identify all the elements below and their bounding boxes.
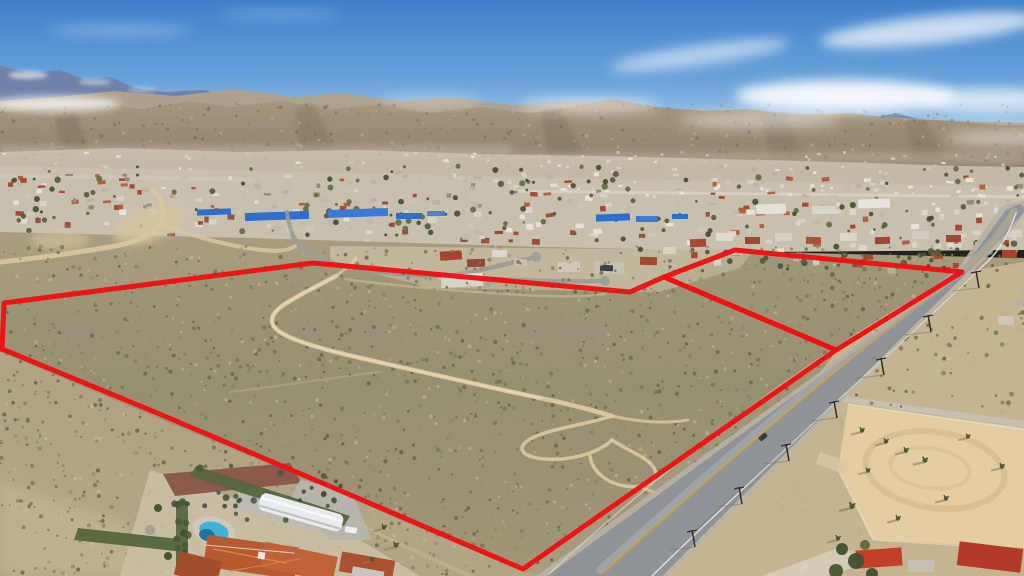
- scatter-dot: [462, 516, 465, 519]
- scatter-dot: [454, 211, 460, 217]
- scatter-dot: [106, 407, 109, 410]
- scatter-dot: [805, 247, 808, 250]
- scatter-dot: [233, 494, 238, 499]
- scatter-dot: [688, 279, 690, 281]
- scatter-dot: [195, 128, 198, 131]
- scatter-building: [468, 224, 473, 230]
- scatter-building: [760, 187, 764, 190]
- scatter-dot: [951, 395, 953, 397]
- scatter-dot: [336, 144, 338, 146]
- valley-haze: [0, 146, 512, 158]
- scatter-dot: [502, 348, 504, 350]
- scatter-building: [462, 234, 469, 240]
- scatter-dot: [728, 321, 732, 325]
- scatter-dot: [934, 353, 938, 357]
- scatter-dot: [483, 273, 485, 275]
- scatter-dot: [345, 331, 349, 335]
- scatter-dot: [888, 386, 892, 390]
- scatter-dot: [283, 274, 286, 277]
- scatter-dot: [312, 465, 314, 467]
- scatter-dot: [595, 406, 598, 409]
- scatter-dot: [783, 146, 786, 149]
- scatter-dot: [556, 452, 560, 456]
- scatter-dot: [94, 358, 96, 360]
- scatter-dot: [44, 131, 46, 133]
- scatter-dot: [711, 215, 716, 220]
- scatter-dot: [368, 300, 369, 301]
- scatter-dot: [605, 394, 607, 396]
- scatter-dot: [534, 330, 536, 332]
- joshua-tree-icon: [904, 448, 908, 452]
- scatter-dot: [487, 431, 491, 435]
- scatter-dot: [552, 394, 555, 397]
- scatter-dot: [32, 486, 34, 488]
- scatter-dot: [228, 361, 231, 364]
- scatter-dot: [24, 436, 28, 440]
- scatter-building: [409, 200, 415, 204]
- scatter-dot: [667, 342, 669, 344]
- scatter-building: [103, 200, 111, 203]
- scatter-dot: [706, 376, 709, 379]
- scatter-dot: [493, 421, 497, 425]
- scatter-dot: [266, 342, 269, 345]
- scatter-building: [104, 166, 108, 169]
- scatter-dot: [73, 572, 76, 575]
- scatter-dot: [737, 184, 741, 188]
- scatter-dot: [918, 143, 921, 146]
- scatter-dot: [699, 346, 701, 348]
- scatter-dot: [61, 571, 65, 575]
- scatter-building: [1007, 186, 1014, 191]
- scatter-dot: [457, 400, 460, 403]
- scatter-dot: [247, 370, 250, 373]
- scatter-dot: [922, 271, 924, 273]
- scatter-dot: [26, 443, 29, 446]
- scatter-dot: [547, 382, 549, 384]
- scatter-dot: [383, 341, 385, 343]
- scatter-dot: [662, 388, 664, 390]
- scatter-dot: [875, 278, 877, 280]
- cloud: [380, 94, 480, 106]
- scatter-dot: [663, 260, 665, 262]
- scatter-dot: [391, 141, 394, 144]
- scatter-dot: [395, 326, 397, 328]
- scatter-dot: [587, 298, 590, 301]
- scatter-dot: [94, 117, 97, 120]
- scatter-dot: [450, 296, 454, 300]
- scatter-dot: [410, 512, 413, 515]
- scatter-dot: [772, 139, 775, 142]
- scatter-dot: [228, 393, 231, 396]
- scatter-dot: [378, 103, 381, 106]
- scatter-dot: [730, 106, 732, 108]
- scatter-dot: [148, 246, 151, 249]
- scatter-dot: [373, 517, 375, 519]
- scatter-dot: [71, 475, 73, 477]
- joshua-tree-icon: [884, 439, 888, 443]
- scatter-dot: [434, 447, 436, 449]
- scatter-dot: [1, 110, 4, 113]
- scatter-dot: [406, 276, 409, 279]
- scatter-dot: [874, 288, 877, 291]
- scatter-dot: [477, 359, 481, 363]
- scatter-dot: [823, 128, 826, 131]
- scatter-dot: [495, 110, 497, 112]
- scatter-dot: [0, 441, 2, 443]
- scatter-dot: [78, 267, 82, 271]
- scatter-dot: [844, 143, 847, 146]
- scatter-dot: [572, 477, 576, 481]
- scatter-dot: [295, 308, 297, 310]
- scatter-dot: [109, 509, 111, 511]
- scatter-dot: [295, 131, 298, 134]
- scatter-dot: [845, 146, 847, 148]
- scatter-dot: [372, 325, 376, 329]
- scatter-dot: [240, 375, 242, 377]
- scatter-dot: [526, 189, 529, 192]
- scatter-dot: [102, 524, 106, 528]
- scatter-dot: [19, 360, 22, 363]
- scatter-dot: [355, 437, 357, 439]
- scatter-dot: [306, 109, 308, 111]
- scatter-dot: [656, 292, 658, 294]
- scatter-building: [916, 195, 920, 197]
- scatter-dot: [384, 253, 387, 256]
- scatter-dot: [551, 112, 553, 114]
- scatter-dot: [298, 498, 302, 502]
- scatter-dot: [57, 251, 60, 254]
- scatter-dot: [301, 315, 303, 317]
- scatter-dot: [733, 369, 736, 372]
- scatter-dot: [202, 113, 205, 116]
- scatter-dot: [77, 310, 80, 313]
- scatter-dot: [33, 206, 39, 212]
- scatter-dot: [470, 413, 472, 415]
- scatter-dot: [505, 370, 507, 372]
- scatter-dot: [577, 268, 579, 270]
- scatter-dot: [690, 385, 692, 387]
- scatter-dot: [212, 445, 216, 449]
- scatter-dot: [359, 479, 362, 482]
- scatter-dot: [493, 311, 497, 315]
- scatter-dot: [437, 302, 441, 306]
- scatter-building: [944, 167, 947, 170]
- scatter-dot: [559, 267, 562, 270]
- scatter-dot: [360, 312, 363, 315]
- scatter-dot: [922, 128, 924, 130]
- scatter-dot: [612, 445, 615, 448]
- scatter-dot: [134, 265, 138, 269]
- scatter-dot: [1013, 147, 1016, 150]
- scatter-dot: [280, 370, 282, 372]
- scatter-dot: [69, 507, 71, 509]
- scatter-dot: [379, 406, 381, 408]
- scatter-dot: [41, 421, 44, 424]
- scatter-building: [594, 172, 599, 176]
- scatter-dot: [549, 371, 553, 375]
- scatter-dot: [994, 331, 999, 336]
- scatter-dot: [323, 143, 325, 145]
- scatter-dot: [778, 340, 782, 344]
- scatter-dot: [495, 380, 499, 384]
- scatter-dot: [849, 332, 853, 336]
- scatter-dot: [123, 317, 127, 321]
- scatter-dot: [76, 568, 80, 572]
- scatter-dot: [88, 250, 90, 252]
- scatter-dot: [799, 251, 802, 254]
- scatter-dot: [274, 335, 278, 339]
- blue-roof-building: [672, 214, 688, 219]
- scatter-dot: [154, 458, 156, 460]
- scatter-dot: [834, 277, 837, 280]
- scatter-dot: [821, 248, 825, 252]
- scatter-dot: [477, 349, 480, 352]
- scatter-dot: [550, 367, 553, 370]
- scatter-dot: [194, 363, 198, 367]
- scatter-dot: [525, 179, 528, 182]
- scatter-dot: [667, 448, 669, 450]
- scatter-dot: [802, 315, 806, 319]
- scatter-dot: [590, 337, 593, 340]
- scatter-dot: [106, 556, 109, 559]
- scatter-dot: [281, 375, 284, 378]
- scatter-dot: [434, 250, 436, 252]
- scatter-dot: [588, 392, 592, 396]
- scatter-dot: [607, 333, 610, 336]
- scatter-building: [116, 155, 121, 158]
- scatter-building: [474, 230, 483, 235]
- scatter-dot: [491, 517, 492, 518]
- scatter-dot: [326, 468, 330, 472]
- scatter-dot: [304, 138, 306, 140]
- scatter-building: [661, 153, 664, 155]
- scatter-dot: [332, 456, 336, 460]
- scatter-building: [628, 157, 633, 159]
- scatter-dot: [513, 547, 516, 550]
- scatter-dot: [519, 485, 522, 488]
- scatter-dot: [582, 357, 584, 359]
- scatter-dot: [711, 419, 713, 421]
- scatter-dot: [515, 289, 519, 293]
- scatter-dot: [797, 298, 798, 299]
- scatter-dot: [467, 431, 469, 433]
- scatter-dot: [640, 113, 642, 115]
- scatter-dot: [501, 498, 503, 500]
- scatter-dot: [103, 565, 106, 568]
- scatter-dot: [67, 512, 69, 514]
- scatter-building: [935, 207, 940, 212]
- scatter-dot: [127, 522, 130, 525]
- scatter-dot: [511, 110, 514, 113]
- scatter-dot: [478, 286, 481, 289]
- scatter-dot: [544, 306, 548, 310]
- scatter-dot: [65, 537, 67, 539]
- scatter-dot: [34, 141, 36, 143]
- scatter-building: [830, 187, 833, 190]
- scatter-dot: [64, 289, 66, 291]
- scatter-dot: [15, 292, 17, 294]
- scatter-dot: [368, 290, 371, 293]
- scatter-building: [994, 156, 996, 158]
- scatter-dot: [898, 123, 900, 125]
- scatter-dot: [600, 116, 603, 119]
- scatter-dot: [461, 339, 465, 343]
- scatter-dot: [39, 381, 41, 383]
- scatter-dot: [548, 280, 550, 282]
- scatter-dot: [747, 131, 750, 134]
- scatter-dot: [28, 420, 30, 422]
- scatter-dot: [363, 460, 366, 463]
- scatter-building: [879, 170, 882, 173]
- scatter-dot: [648, 110, 650, 112]
- scatter-dot: [168, 142, 171, 145]
- scatter-building: [582, 155, 584, 157]
- scatter-dot: [87, 270, 89, 272]
- scatter-dot: [228, 307, 231, 310]
- scatter-dot: [759, 348, 762, 351]
- scatter-dot: [68, 414, 72, 418]
- scatter-dot: [520, 529, 524, 533]
- scatter-dot: [896, 289, 898, 291]
- scatter-dot: [249, 134, 252, 137]
- scatter-dot: [577, 312, 581, 316]
- scatter-dot: [944, 254, 946, 256]
- scatter-dot: [870, 134, 873, 137]
- scatter-dot: [465, 565, 468, 568]
- scatter-dot: [561, 434, 563, 436]
- scatter-dot: [139, 315, 143, 319]
- scatter-dot: [464, 532, 467, 535]
- scatter-dot: [475, 314, 478, 317]
- scatter-dot: [472, 118, 475, 121]
- scatter-dot: [91, 542, 94, 545]
- scatter-dot: [452, 115, 456, 119]
- scatter-dot: [14, 380, 16, 382]
- scatter-building: [333, 161, 335, 163]
- scatter-dot: [37, 435, 40, 438]
- scatter-building: [781, 192, 785, 195]
- scatter-dot: [99, 134, 101, 136]
- scatter-dot: [640, 410, 644, 414]
- scatter-dot: [339, 442, 341, 444]
- scatter-building: [61, 153, 65, 156]
- scatter-dot: [424, 250, 428, 254]
- scatter-dot: [789, 357, 791, 359]
- scatter-dot: [329, 132, 333, 136]
- scatter-building: [634, 155, 637, 158]
- scatter-dot: [402, 523, 405, 526]
- scatter-dot: [655, 261, 657, 263]
- scatter-dot: [516, 480, 519, 483]
- house-roof: [775, 233, 792, 242]
- scatter-dot: [329, 359, 332, 362]
- scatter-dot: [553, 212, 557, 216]
- scatter-building: [344, 154, 349, 157]
- scatter-dot: [22, 498, 24, 500]
- scatter-dot: [403, 165, 406, 168]
- scatter-dot: [99, 409, 101, 411]
- scatter-dot: [699, 277, 703, 281]
- scatter-dot: [588, 507, 591, 510]
- scatter-dot: [299, 466, 301, 468]
- scatter-dot: [127, 431, 131, 435]
- scatter-dot: [521, 343, 523, 345]
- scatter-dot: [84, 192, 90, 198]
- scatter-building: [557, 164, 561, 167]
- scatter-dot: [298, 121, 301, 124]
- scatter-dot: [428, 477, 431, 480]
- scatter-dot: [736, 144, 739, 147]
- scatter-dot: [395, 507, 399, 511]
- scatter-dot: [612, 342, 616, 346]
- scatter-dot: [569, 484, 573, 488]
- scatter-dot: [381, 502, 383, 504]
- scatter-dot: [177, 286, 179, 288]
- scatter-dot: [896, 274, 898, 276]
- scatter-dot: [323, 437, 327, 441]
- scatter-dot: [426, 197, 429, 200]
- scatter-dot: [179, 107, 182, 110]
- scatter-dot: [465, 267, 468, 270]
- scatter-dot: [190, 116, 193, 119]
- scatter-dot: [582, 144, 583, 145]
- scatter-building: [211, 205, 215, 208]
- scatter-building: [505, 165, 510, 168]
- scatter-dot: [560, 410, 562, 412]
- scatter-dot: [495, 529, 497, 531]
- scatter-dot: [861, 254, 864, 257]
- scatter-dot: [629, 444, 632, 447]
- scatter-dot: [510, 357, 514, 361]
- scatter-dot: [102, 514, 105, 517]
- scatter-dot: [42, 345, 44, 347]
- scatter-dot: [328, 458, 332, 462]
- scatter-dot: [395, 502, 397, 504]
- scatter-dot: [981, 405, 984, 408]
- blue-roof-building: [596, 213, 630, 221]
- scatter-building: [951, 193, 959, 197]
- scatter-dot: [248, 340, 250, 342]
- scatter-dot: [463, 446, 465, 448]
- scatter-dot: [591, 493, 594, 496]
- scatter-dot: [19, 507, 20, 508]
- scatter-dot: [577, 298, 580, 301]
- scatter-dot: [183, 519, 190, 526]
- scatter-dot: [639, 293, 641, 295]
- scatter-dot: [856, 281, 859, 284]
- scatter-dot: [375, 543, 379, 547]
- scatter-dot: [734, 416, 736, 418]
- scatter-dot: [139, 416, 142, 419]
- scatter-dot: [514, 345, 517, 348]
- scatter-dot: [96, 468, 100, 472]
- scatter-dot: [632, 139, 635, 142]
- scatter-dot: [124, 252, 126, 254]
- scatter-dot: [614, 399, 617, 402]
- scatter-building: [780, 184, 784, 188]
- scatter-dot: [414, 299, 417, 302]
- scatter-dot: [110, 551, 112, 553]
- scatter-dot: [310, 486, 314, 490]
- scatter-dot: [944, 173, 948, 177]
- scatter-dot: [403, 491, 406, 494]
- scatter-dot: [178, 304, 182, 308]
- scatter-dot: [50, 125, 52, 127]
- scatter-dot: [746, 334, 749, 337]
- scatter-dot: [449, 351, 453, 355]
- scatter-dot: [621, 128, 624, 131]
- scatter-dot: [130, 117, 131, 118]
